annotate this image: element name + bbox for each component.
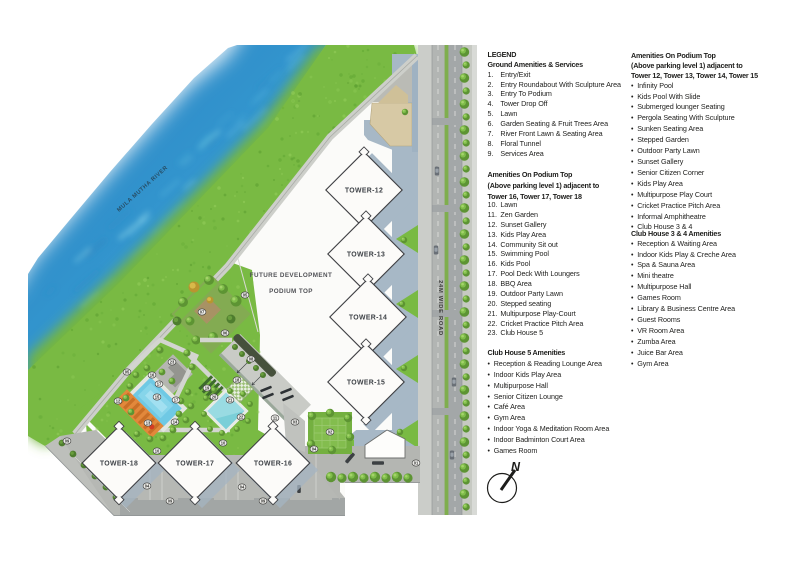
svg-text:10: 10: [155, 449, 160, 454]
svg-text:08: 08: [249, 357, 254, 362]
svg-text:N: N: [511, 460, 521, 474]
svg-text:04: 04: [145, 484, 150, 489]
svg-text:TOWER-17: TOWER-17: [176, 461, 214, 468]
svg-text:23: 23: [170, 360, 175, 365]
svg-text:09: 09: [261, 499, 266, 504]
svg-text:02: 02: [328, 430, 333, 435]
svg-text:PODIUM TOP: PODIUM TOP: [269, 288, 313, 295]
svg-text:22: 22: [239, 415, 244, 420]
svg-text:20: 20: [212, 395, 217, 400]
svg-text:18: 18: [235, 378, 240, 383]
svg-text:07: 07: [200, 310, 205, 315]
svg-text:TOWER-15: TOWER-15: [347, 380, 385, 387]
svg-text:16: 16: [150, 373, 155, 378]
svg-text:14: 14: [173, 420, 178, 425]
svg-text:TOWER-18: TOWER-18: [100, 461, 138, 468]
svg-text:TOWER-12: TOWER-12: [345, 188, 383, 195]
svg-text:12: 12: [116, 399, 121, 404]
svg-text:TOWER-13: TOWER-13: [347, 252, 385, 259]
svg-text:21: 21: [228, 398, 233, 403]
svg-text:TOWER-16: TOWER-16: [254, 461, 292, 468]
svg-text:19: 19: [205, 386, 210, 391]
svg-text:01: 01: [414, 461, 419, 466]
svg-text:17: 17: [174, 398, 179, 403]
svg-text:05: 05: [243, 293, 248, 298]
svg-text:24M WIDE ROAD: 24M WIDE ROAD: [437, 280, 443, 336]
svg-text:FUTURE DEVELOPMENT: FUTURE DEVELOPMENT: [250, 272, 332, 279]
svg-text:10: 10: [221, 441, 226, 446]
svg-text:04: 04: [240, 485, 245, 490]
svg-text:11: 11: [273, 416, 278, 421]
svg-text:17: 17: [157, 382, 162, 387]
svg-text:04: 04: [312, 447, 317, 452]
svg-text:TOWER-14: TOWER-14: [349, 315, 387, 322]
svg-text:05: 05: [125, 370, 130, 375]
svg-text:15: 15: [155, 395, 160, 400]
svg-text:06: 06: [223, 331, 228, 336]
svg-text:13: 13: [146, 421, 151, 426]
svg-text:03: 03: [293, 420, 298, 425]
svg-text:09: 09: [168, 499, 173, 504]
svg-text:09: 09: [65, 439, 70, 444]
